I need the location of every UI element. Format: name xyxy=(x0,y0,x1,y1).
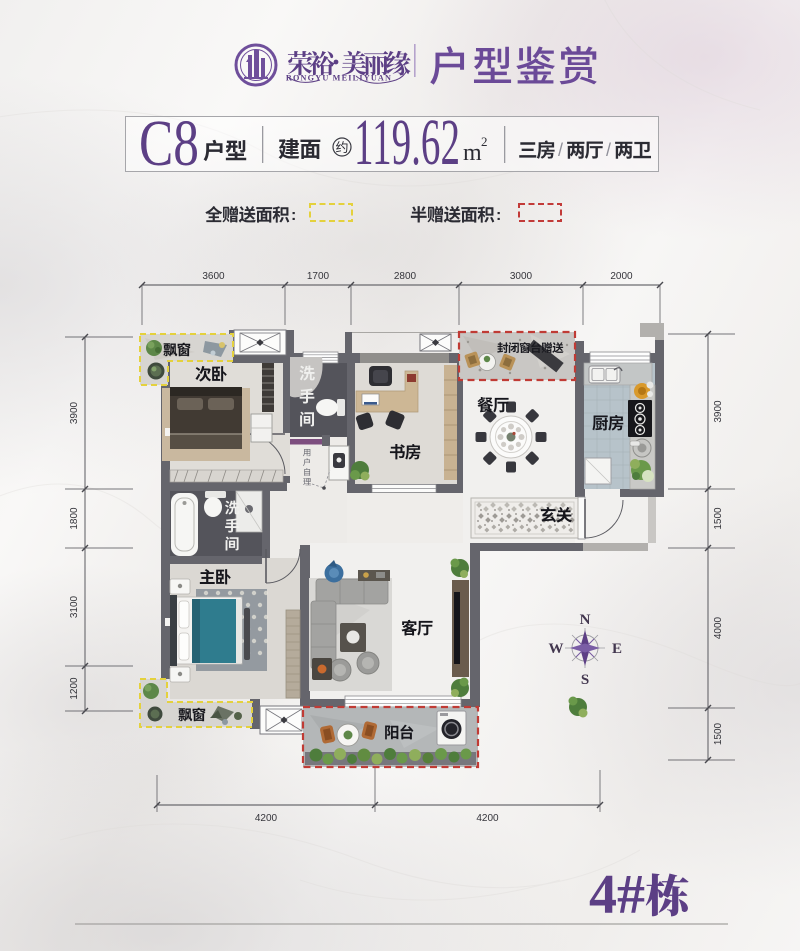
svg-text:C8: C8 xyxy=(139,107,199,180)
svg-text:1500: 1500 xyxy=(713,507,724,530)
svg-text:4#: 4# xyxy=(589,864,645,926)
svg-text:2: 2 xyxy=(481,134,488,149)
svg-text:1700: 1700 xyxy=(307,271,330,282)
svg-text:1200: 1200 xyxy=(69,677,80,700)
svg-text:3000: 3000 xyxy=(510,271,533,282)
svg-text::: : xyxy=(291,207,296,224)
svg-text:/: / xyxy=(558,140,563,160)
svg-text:2800: 2800 xyxy=(394,271,417,282)
svg-text:3100: 3100 xyxy=(69,595,80,618)
svg-text:4200: 4200 xyxy=(476,813,499,824)
svg-text:W: W xyxy=(549,641,564,657)
svg-text:1500: 1500 xyxy=(713,722,724,745)
svg-text::: : xyxy=(496,207,501,224)
svg-text:4200: 4200 xyxy=(255,813,278,824)
svg-text:119.62: 119.62 xyxy=(354,106,460,179)
svg-text:RONGYU MEILIYUAN: RONGYU MEILIYUAN xyxy=(286,74,392,83)
svg-text:N: N xyxy=(580,612,591,628)
svg-text:S: S xyxy=(581,672,589,688)
svg-text:3900: 3900 xyxy=(713,400,724,423)
svg-text:3900: 3900 xyxy=(69,401,80,424)
svg-text:2000: 2000 xyxy=(610,271,633,282)
svg-text:4000: 4000 xyxy=(713,616,724,639)
svg-text:/: / xyxy=(606,140,611,160)
svg-text:E: E xyxy=(612,641,622,657)
svg-text:3600: 3600 xyxy=(202,271,225,282)
svg-text:1800: 1800 xyxy=(69,507,80,530)
svg-text:m: m xyxy=(463,140,482,166)
